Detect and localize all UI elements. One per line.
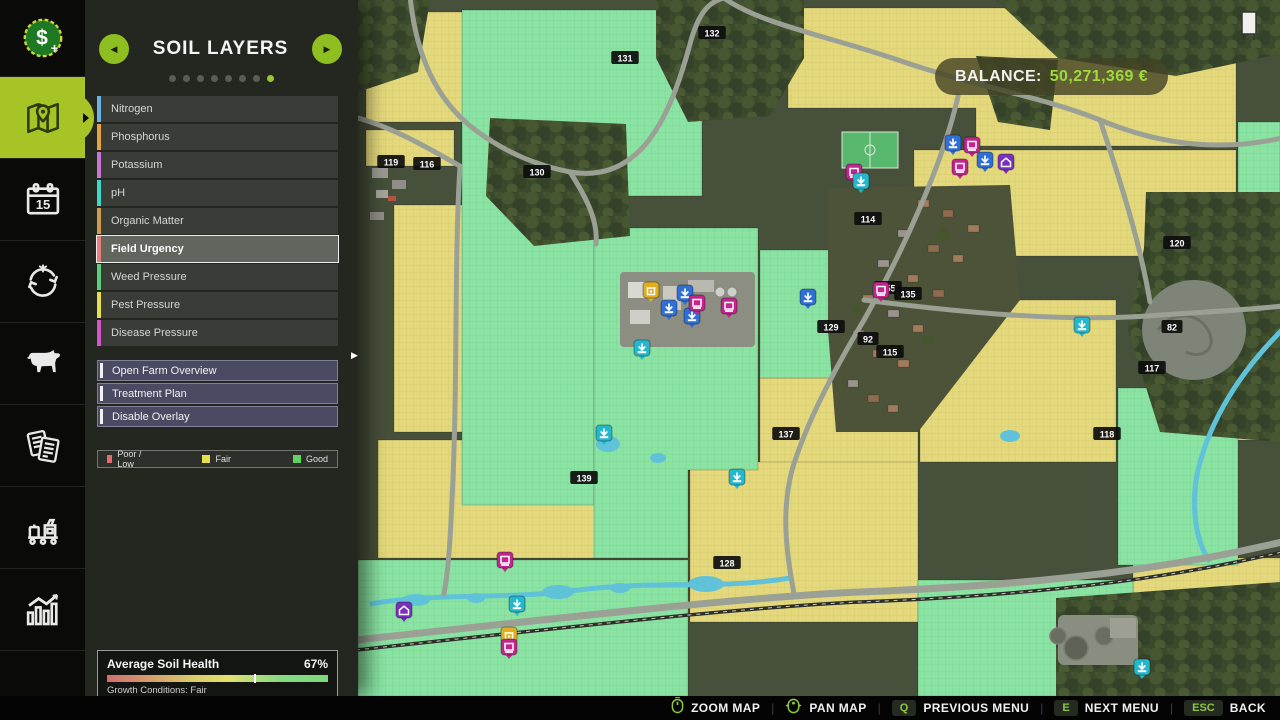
legend-swatch xyxy=(202,455,210,463)
legend-label: Good xyxy=(306,454,328,464)
svg-text:128: 128 xyxy=(719,559,734,569)
page-dot-2 xyxy=(183,75,190,82)
layer-color-bar xyxy=(97,320,101,346)
contracts-icon xyxy=(22,425,64,467)
page-dot-7 xyxy=(253,75,260,82)
layer-label: Pest Pressure xyxy=(111,299,180,311)
field-badge-116: 116 xyxy=(413,157,441,170)
treatment-facility xyxy=(1050,615,1138,665)
field-badge-135: 135 xyxy=(894,287,922,300)
legend-item-fair: Fair xyxy=(202,454,231,464)
svg-text:114: 114 xyxy=(861,215,876,225)
hint-label: ZOOM MAP xyxy=(691,701,760,715)
sidebar-tab-statistics[interactable] xyxy=(0,569,85,651)
soil-layer-list: NitrogenPhosphorusPotassiumpHOrganic Mat… xyxy=(97,96,338,348)
page-dot-4 xyxy=(211,75,218,82)
legend-label: Poor / Low xyxy=(117,449,146,469)
svg-text:82: 82 xyxy=(1167,323,1177,333)
svg-text:116: 116 xyxy=(420,160,435,170)
hint-separator: | xyxy=(1170,701,1173,715)
button-label: Open Farm Overview xyxy=(112,365,217,377)
svg-text:137: 137 xyxy=(778,430,793,440)
legend-item-good: Good xyxy=(293,454,328,464)
hint-separator: | xyxy=(1040,701,1043,715)
field-badge-129: 129 xyxy=(817,320,845,333)
field-badge-137: 137 xyxy=(772,427,800,440)
layer-label: Nitrogen xyxy=(111,103,153,115)
layer-color-bar xyxy=(97,292,101,318)
svg-text:+: + xyxy=(50,41,57,55)
field-badge-115: 115 xyxy=(876,345,904,358)
key-q: Q xyxy=(892,700,917,716)
page-dots xyxy=(85,75,358,82)
button-label: Treatment Plan xyxy=(112,388,187,400)
field-badge-82: 82 xyxy=(1162,320,1183,333)
hint-separator: | xyxy=(878,701,881,715)
button-accent-bar xyxy=(100,409,103,424)
balance-display: BALANCE: 50,271,369 € xyxy=(935,58,1168,95)
sidebar-tab-animals[interactable] xyxy=(0,323,85,405)
map-legend: Poor / LowFairGood xyxy=(97,450,338,468)
open-farm-overview-button[interactable]: Open Farm Overview xyxy=(97,360,338,381)
menu-sidebar: $+15 xyxy=(0,0,85,696)
soil-health-marker xyxy=(254,674,256,683)
hint-label: BACK xyxy=(1230,701,1266,715)
soil-layer-field-urgency[interactable]: Field Urgency xyxy=(97,236,338,262)
layer-color-bar xyxy=(97,152,101,178)
svg-text:$: $ xyxy=(36,27,48,50)
layer-color-bar xyxy=(97,236,101,262)
treatment-plan-button[interactable]: Treatment Plan xyxy=(97,383,338,404)
button-accent-bar xyxy=(100,363,103,378)
layer-label: Disease Pressure xyxy=(111,327,198,339)
svg-text:129: 129 xyxy=(823,323,838,333)
soil-health-bar xyxy=(107,675,328,682)
hint-zoom-map: ZOOM MAP xyxy=(671,697,760,719)
layer-color-bar xyxy=(97,124,101,150)
layer-label: Organic Matter xyxy=(111,215,184,227)
soil-layer-pest-pressure[interactable]: Pest Pressure xyxy=(97,292,338,318)
svg-text:120: 120 xyxy=(1169,239,1184,249)
soil-health-value: 67% xyxy=(304,657,328,671)
field-badge-130: 130 xyxy=(523,165,551,178)
sport-pitch xyxy=(842,132,898,168)
animals-icon xyxy=(21,342,65,386)
layer-label: Weed Pressure xyxy=(111,271,187,283)
sidebar-tab-map[interactable] xyxy=(0,77,85,159)
hint-label: PAN MAP xyxy=(809,701,866,715)
field-badge-131: 131 xyxy=(611,51,639,64)
legend-swatch xyxy=(293,455,301,463)
hint-back: ESCBACK xyxy=(1184,700,1266,716)
game-screen: 1321311191161301141202551351299211582117… xyxy=(0,0,1280,720)
sidebar-tab-crop-rotation[interactable] xyxy=(0,241,85,323)
panel-actions: Open Farm OverviewTreatment PlanDisable … xyxy=(97,360,338,429)
svg-text:115: 115 xyxy=(883,348,898,358)
hint-separator: | xyxy=(771,701,774,715)
key-e: E xyxy=(1054,700,1077,716)
soil-layer-nitrogen[interactable]: Nitrogen xyxy=(97,96,338,122)
partial-icon xyxy=(22,683,64,697)
page-dot-6 xyxy=(239,75,246,82)
svg-text:119: 119 xyxy=(384,158,399,168)
svg-text:131: 131 xyxy=(617,54,632,64)
field-badge-119: 119 xyxy=(377,155,405,168)
layer-color-bar xyxy=(97,264,101,290)
layer-color-bar xyxy=(97,180,101,206)
active-tab-arrow xyxy=(83,113,89,123)
field-badge-139: 139 xyxy=(570,471,598,484)
money-icon: $+ xyxy=(20,15,66,61)
svg-text:132: 132 xyxy=(704,29,719,39)
hint-label: NEXT MENU xyxy=(1085,701,1159,715)
map-icon xyxy=(21,96,65,140)
soil-layer-potassium[interactable]: Potassium xyxy=(97,152,338,178)
soil-layer-phosphorus[interactable]: Phosphorus xyxy=(97,124,338,150)
field-badge-132: 132 xyxy=(698,26,726,39)
legend-label: Fair xyxy=(215,454,231,464)
page-dot-3 xyxy=(197,75,204,82)
panel-collapse-arrow[interactable]: ▶ xyxy=(351,350,358,361)
layer-label: Potassium xyxy=(111,159,162,171)
production-icon xyxy=(22,507,64,549)
sidebar-tab-production[interactable] xyxy=(0,487,85,569)
crop-rotation-icon xyxy=(22,261,64,303)
hint-next-menu: ENEXT MENU xyxy=(1054,700,1159,716)
page-dot-8 xyxy=(267,75,274,82)
hint-pan-map: PAN MAP xyxy=(785,697,866,719)
balance-value: 50,271,369 € xyxy=(1050,68,1148,86)
layer-color-bar xyxy=(97,96,101,122)
soil-layer-disease-pressure[interactable]: Disease Pressure xyxy=(97,320,338,346)
sidebar-tab-finances[interactable]: $+ xyxy=(0,0,85,77)
hint-previous-menu: QPREVIOUS MENU xyxy=(892,700,1029,716)
page-dot-5 xyxy=(225,75,232,82)
button-label: Disable Overlay xyxy=(112,411,190,423)
layer-label: Phosphorus xyxy=(111,131,170,143)
soil-layers-panel: ◀ SOIL LAYERS ▶ NitrogenPhosphorusPotass… xyxy=(85,0,358,696)
layer-label: pH xyxy=(111,187,125,199)
button-accent-bar xyxy=(100,386,103,401)
field-badge-92: 92 xyxy=(858,332,879,345)
mouse-pan-icon xyxy=(785,697,802,719)
field-badge-120: 120 xyxy=(1163,236,1191,249)
soil-health-summary: Average Soil Health 67% Growth Condition… xyxy=(97,650,338,701)
hint-label: PREVIOUS MENU xyxy=(923,701,1029,715)
soil-health-title: Average Soil Health xyxy=(107,657,219,671)
page-title: SOIL LAYERS xyxy=(153,38,289,60)
soil-layer-ph[interactable]: pH xyxy=(97,180,338,206)
svg-text:117: 117 xyxy=(1145,364,1160,374)
svg-text:130: 130 xyxy=(529,168,544,178)
page-left-arrow[interactable]: ◀ xyxy=(99,34,129,64)
statistics-icon xyxy=(22,589,64,631)
key-esc: ESC xyxy=(1184,700,1223,716)
layer-label: Field Urgency xyxy=(111,243,184,255)
page-dot-1 xyxy=(169,75,176,82)
growth-conditions-label: Growth Conditions: Fair xyxy=(107,685,328,696)
balance-label: BALANCE: xyxy=(955,68,1042,86)
page-right-arrow[interactable]: ▶ xyxy=(312,34,342,64)
sidebar-tab-calendar[interactable]: 15 xyxy=(0,159,85,241)
sidebar-tab-more[interactable] xyxy=(0,651,85,696)
field-badge-128: 128 xyxy=(713,556,741,569)
soil-layer-organic-matter[interactable]: Organic Matter xyxy=(97,208,338,234)
field-badge-118: 118 xyxy=(1093,427,1121,440)
field-badge-117: 117 xyxy=(1138,361,1166,374)
input-hint-bar: ZOOM MAP|PAN MAP|QPREVIOUS MENU|ENEXT ME… xyxy=(0,696,1280,720)
disable-overlay-button[interactable]: Disable Overlay xyxy=(97,406,338,427)
world-map[interactable]: 1321311191161301141202551351299211582117… xyxy=(358,0,1280,696)
svg-text:92: 92 xyxy=(863,335,873,345)
legend-swatch xyxy=(107,455,112,463)
svg-text:118: 118 xyxy=(1100,430,1115,440)
layer-color-bar xyxy=(97,208,101,234)
panel-header: ◀ SOIL LAYERS ▶ xyxy=(85,0,358,64)
svg-text:15: 15 xyxy=(35,196,50,211)
field-badge-114: 114 xyxy=(854,212,882,225)
soil-layer-weed-pressure[interactable]: Weed Pressure xyxy=(97,264,338,290)
map-canvas[interactable]: 1321311191161301141202551351299211582117… xyxy=(358,0,1280,696)
sidebar-tab-contracts[interactable] xyxy=(0,405,85,487)
svg-text:135: 135 xyxy=(900,290,915,300)
mouse-zoom-icon xyxy=(671,697,684,719)
calendar-icon: 15 xyxy=(22,179,64,221)
svg-text:139: 139 xyxy=(576,474,591,484)
legend-item-poor-low: Poor / Low xyxy=(107,449,146,469)
